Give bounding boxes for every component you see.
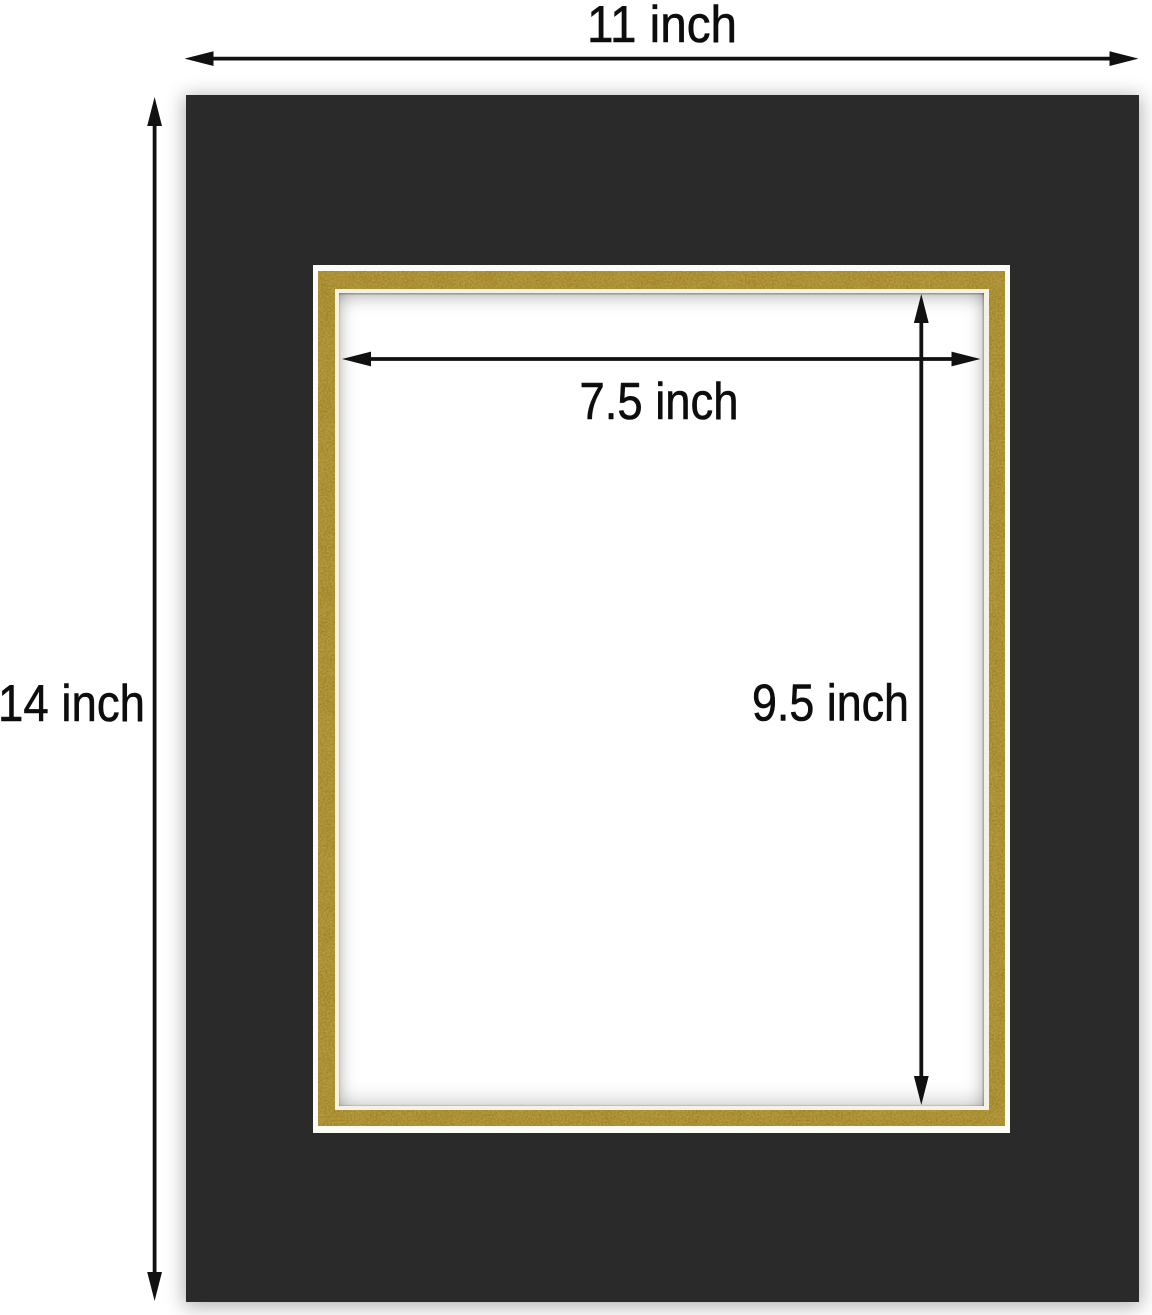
svg-text:7.5 inch: 7.5 inch — [580, 373, 739, 431]
svg-text:9.5 inch: 9.5 inch — [752, 675, 909, 733]
svg-text:11 inch: 11 inch — [587, 0, 737, 54]
svg-text:14 inch: 14 inch — [0, 675, 145, 733]
